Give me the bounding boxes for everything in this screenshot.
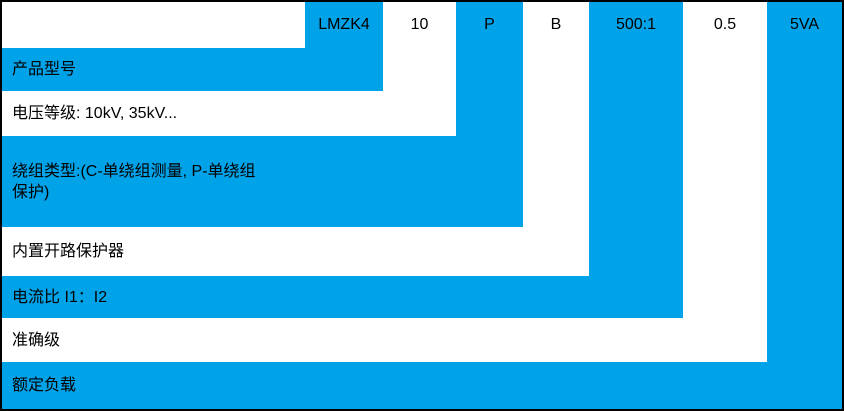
row-voltage-class: 电压等级: 10kV, 35kV... bbox=[2, 91, 456, 136]
row-rated-load-label: 额定负载 bbox=[12, 375, 76, 396]
row-builtin-protector-label: 内置开路保护器 bbox=[12, 241, 124, 262]
row-builtin-protector: 内置开路保护器 bbox=[2, 227, 589, 276]
row-accuracy-class: 准确级 bbox=[2, 318, 767, 362]
code-segment-ratio: 500:1 bbox=[589, 2, 683, 48]
highlight-column-rated-load bbox=[767, 2, 842, 409]
code-segment-voltage: 10 bbox=[383, 2, 456, 48]
code-segment-winding: P bbox=[456, 2, 523, 48]
code-segment-accuracy: 0.5 bbox=[683, 2, 767, 48]
row-accuracy-class-label: 准确级 bbox=[12, 330, 60, 351]
row-product-model-label: 产品型号 bbox=[12, 59, 76, 80]
row-winding-type-label: 绕组类型:(C-单绕组测量, P-单绕组 保护) bbox=[12, 161, 256, 203]
code-segment-lmzk4: LMZK4 bbox=[305, 2, 383, 48]
highlight-column-current-ratio bbox=[589, 2, 683, 318]
code-segment-protector: B bbox=[523, 2, 589, 48]
row-voltage-class-label: 电压等级: 10kV, 35kV... bbox=[12, 103, 177, 124]
code-segment-load: 5VA bbox=[767, 2, 842, 48]
row-winding-type: 绕组类型:(C-单绕组测量, P-单绕组 保护) bbox=[2, 136, 523, 227]
model-code-designation-diagram: 产品型号 电压等级: 10kV, 35kV... 绕组类型:(C-单绕组测量, … bbox=[0, 0, 844, 411]
row-product-model: 产品型号 bbox=[2, 48, 383, 91]
row-current-ratio-label: 电流比 I1：I2 bbox=[12, 287, 107, 308]
row-current-ratio: 电流比 I1：I2 bbox=[2, 276, 683, 318]
row-rated-load: 额定负载 bbox=[2, 362, 842, 409]
